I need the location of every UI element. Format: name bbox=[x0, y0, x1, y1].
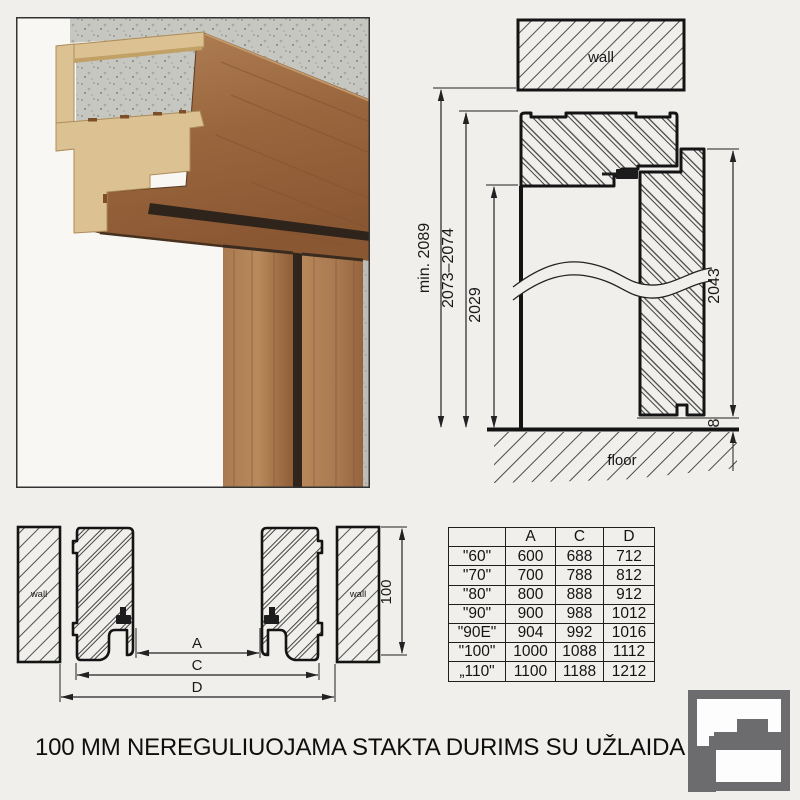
dim-label-a: A bbox=[192, 635, 202, 652]
table-value-cell: 600 bbox=[506, 547, 556, 566]
table-size-cell: "100" bbox=[449, 643, 506, 662]
dim-label-floor-gap: 8 bbox=[706, 418, 723, 427]
table-value-cell: 800 bbox=[506, 585, 556, 604]
table-value-cell: 912 bbox=[604, 585, 655, 604]
seal-right bbox=[264, 615, 279, 624]
table-value-cell: 1112 bbox=[604, 643, 655, 662]
table-header-row: ACD bbox=[449, 528, 655, 547]
datasheet-page: wall floor bbox=[0, 0, 800, 800]
table-size-cell: "90" bbox=[449, 604, 506, 623]
size-table-head: ACD bbox=[449, 528, 655, 547]
table-row: „110"110011881212 bbox=[449, 662, 655, 681]
table-row: "90"9009881012 bbox=[449, 604, 655, 623]
table-value-cell: 812 bbox=[604, 566, 655, 585]
wall-label-left: wall bbox=[30, 589, 47, 600]
sheet-title: 100 MM NEREGULIUOJAMA STAKTA DURIMS SU U… bbox=[35, 734, 695, 762]
size-table-body: "60"600688712"70"700788812"80"800888912"… bbox=[449, 547, 655, 681]
table-value-cell: 1012 bbox=[604, 604, 655, 623]
table-value-cell: 700 bbox=[506, 566, 556, 585]
seal-left bbox=[116, 615, 131, 624]
dim-label-clear-opening: 2029 bbox=[467, 287, 484, 323]
wall-label-right: wall bbox=[349, 589, 366, 600]
dim-label-c: C bbox=[192, 657, 203, 674]
table-value-cell: 1016 bbox=[604, 623, 655, 642]
table-value-cell: 1188 bbox=[556, 662, 604, 681]
dim-clear-opening: 2029 bbox=[467, 186, 497, 428]
table-size-cell: "70" bbox=[449, 566, 506, 585]
logo-frame-profile-icon bbox=[688, 695, 790, 793]
table-value-cell: 988 bbox=[556, 604, 604, 623]
table-value-cell: 1088 bbox=[556, 643, 604, 662]
table-header-cell bbox=[449, 528, 506, 547]
table-header-cell: A bbox=[506, 528, 556, 547]
head-seal bbox=[616, 169, 638, 179]
dim-label-d: D bbox=[192, 679, 203, 696]
table-row: "80"800888912 bbox=[449, 585, 655, 604]
table-size-cell: "60" bbox=[449, 547, 506, 566]
table-header-cell: D bbox=[604, 528, 655, 547]
table-size-cell: "80" bbox=[449, 585, 506, 604]
table-value-cell: 788 bbox=[556, 566, 604, 585]
dim-leaf-height: 2043 bbox=[706, 150, 736, 417]
dim-label-leaf-height: 2043 bbox=[706, 268, 723, 304]
dim-label-opening-min: min. 2089 bbox=[416, 223, 433, 293]
vertical-section-drawing: wall floor bbox=[416, 20, 739, 483]
table-size-cell: „110" bbox=[449, 662, 506, 681]
table-value-cell: 688 bbox=[556, 547, 604, 566]
table-row: "100"100010881112 bbox=[449, 643, 655, 662]
dim-label-depth: 100 bbox=[378, 579, 395, 604]
table-row: "70"700788812 bbox=[449, 566, 655, 585]
table-value-cell: 904 bbox=[506, 623, 556, 642]
table-row: "60"600688712 bbox=[449, 547, 655, 566]
horizontal-section-drawing: wall wall bbox=[18, 527, 407, 702]
table-value-cell: 888 bbox=[556, 585, 604, 604]
dim-d: D bbox=[61, 679, 334, 700]
frame-profile-right bbox=[262, 528, 322, 660]
dim-a: A bbox=[137, 635, 259, 656]
table-value-cell: 712 bbox=[604, 547, 655, 566]
table-value-cell: 992 bbox=[556, 623, 604, 642]
wall-label: wall bbox=[587, 49, 614, 66]
dim-label-frame-outer: 2073–2074 bbox=[440, 228, 457, 308]
brand-logo bbox=[688, 690, 790, 792]
dim-c: C bbox=[77, 657, 318, 678]
table-size-cell: "90E" bbox=[449, 623, 506, 642]
floor-label: floor bbox=[607, 452, 636, 469]
size-table: ACD "60"600688712"70"700788812"80"800888… bbox=[448, 527, 655, 682]
technical-drawings: wall floor bbox=[0, 0, 800, 800]
table-value-cell: 900 bbox=[506, 604, 556, 623]
dim-frame-outer: 2073–2074 bbox=[440, 112, 469, 428]
table-value-cell: 1212 bbox=[604, 662, 655, 681]
dim-depth: 100 bbox=[378, 528, 405, 654]
table-header-cell: C bbox=[556, 528, 604, 547]
table-value-cell: 1000 bbox=[506, 643, 556, 662]
frame-profile-left bbox=[73, 528, 133, 660]
table-value-cell: 1100 bbox=[506, 662, 556, 681]
table-row: "90E"9049921016 bbox=[449, 623, 655, 642]
